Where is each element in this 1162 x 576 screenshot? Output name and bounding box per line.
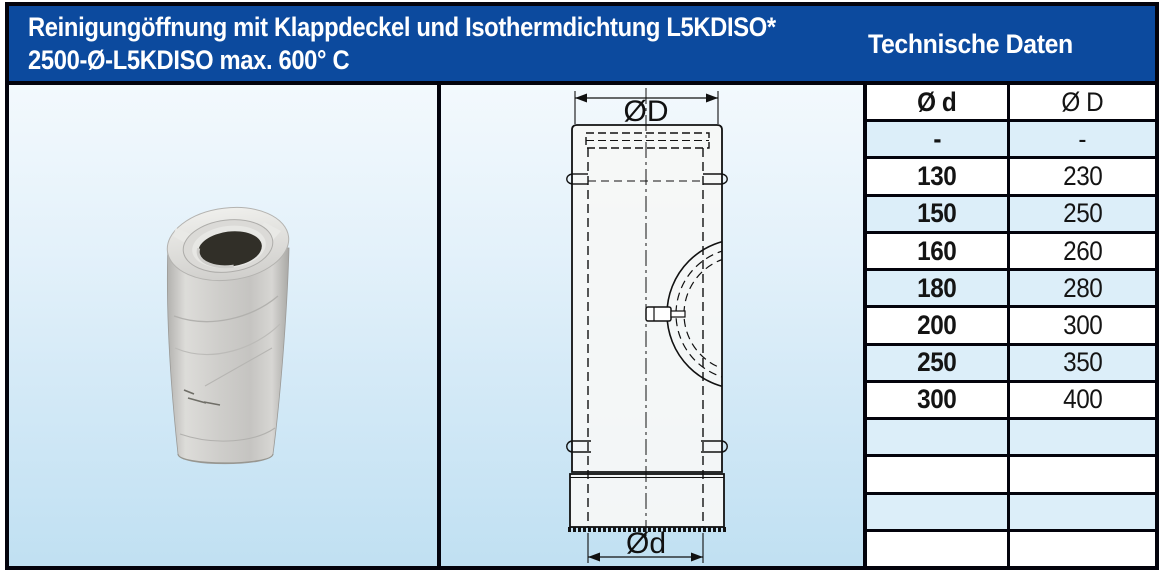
column-header-d-label: Ø d — [917, 87, 956, 118]
dim-label-inner: Ød — [626, 527, 666, 560]
cell-d-value: 130 — [917, 161, 956, 192]
cell-d-value: 200 — [917, 310, 956, 341]
header-bar: Reinigungöffnung mit Klappdeckel und Iso… — [9, 6, 1155, 85]
cell-d-value: - — [933, 124, 941, 155]
table-row-empty — [867, 495, 1155, 532]
table-row: 150 250 — [867, 197, 1155, 234]
technical-data-heading: Technische Daten — [868, 29, 1073, 60]
table-row-empty — [867, 532, 1155, 566]
cell-d — [867, 420, 1010, 454]
table-row: 160 260 — [867, 234, 1155, 271]
cell-D — [1010, 495, 1155, 529]
cell-d — [867, 532, 1010, 566]
cell-d: 160 — [867, 234, 1010, 268]
cell-d: 130 — [867, 159, 1010, 193]
cell-d: 250 — [867, 346, 1010, 380]
column-header-D: Ø D — [1010, 85, 1155, 119]
cell-D-value: 280 — [1063, 273, 1102, 304]
cell-D: 280 — [1010, 271, 1155, 305]
cell-D-value: 300 — [1063, 310, 1102, 341]
cell-D-value: 250 — [1063, 198, 1102, 229]
cell-d-value: 300 — [917, 384, 956, 415]
product-photo — [150, 196, 292, 482]
table-row: 200 300 — [867, 308, 1155, 345]
dimension-table: Ø d Ø D - - 130 230 150 250 160 260 — [863, 85, 1155, 566]
cell-D — [1010, 457, 1155, 491]
cell-D-value: 230 — [1063, 161, 1102, 192]
cell-D — [1010, 532, 1155, 566]
cell-D: 250 — [1010, 197, 1155, 231]
table-row-empty — [867, 420, 1155, 457]
cell-D-value: 400 — [1063, 384, 1102, 415]
catalog-page: Reinigungöffnung mit Klappdeckel und Iso… — [0, 0, 1162, 576]
cell-d — [867, 495, 1010, 529]
cell-D: - — [1010, 122, 1155, 156]
table-header-row: Ø d Ø D — [867, 85, 1155, 122]
table-row: 180 280 — [867, 271, 1155, 308]
cell-D — [1010, 420, 1155, 454]
cell-D: 230 — [1010, 159, 1155, 193]
table-row: - - — [867, 122, 1155, 159]
technical-drawing: ØD Ød — [441, 85, 863, 566]
table-row: 130 230 — [867, 159, 1155, 196]
cell-D-value: - — [1079, 124, 1087, 155]
cell-D: 260 — [1010, 234, 1155, 268]
cell-d: 180 — [867, 271, 1010, 305]
cell-d: - — [867, 122, 1010, 156]
page-frame: Reinigungöffnung mit Klappdeckel und Iso… — [5, 2, 1159, 570]
column-header-D-label: Ø D — [1062, 87, 1104, 118]
title-line-1: Reinigungöffnung mit Klappdeckel und Iso… — [28, 11, 776, 44]
cell-d: 300 — [867, 383, 1010, 417]
cell-d-value: 180 — [917, 273, 956, 304]
cell-d: 200 — [867, 308, 1010, 342]
table-row-empty — [867, 457, 1155, 494]
cell-D: 350 — [1010, 346, 1155, 380]
cell-d-value: 150 — [917, 198, 956, 229]
cell-d — [867, 457, 1010, 491]
cell-D: 400 — [1010, 383, 1155, 417]
table-row: 300 400 — [867, 383, 1155, 420]
title-line-2: 2500-Ø-L5KDISO max. 600° C — [28, 44, 776, 77]
cell-D: 300 — [1010, 308, 1155, 342]
cell-d-value: 250 — [917, 347, 956, 378]
table-row: 250 350 — [867, 346, 1155, 383]
page-title: Reinigungöffnung mit Klappdeckel und Iso… — [28, 11, 776, 77]
cell-d-value: 160 — [917, 236, 956, 267]
column-header-d: Ø d — [867, 85, 1010, 119]
cell-d: 150 — [867, 197, 1010, 231]
cell-D-value: 350 — [1063, 347, 1102, 378]
pipe-outline — [570, 125, 724, 527]
dim-label-outer: ØD — [624, 95, 669, 128]
content-area: ØD Ød Ø d Ø D - - — [9, 85, 1155, 566]
cell-D-value: 260 — [1063, 236, 1102, 267]
